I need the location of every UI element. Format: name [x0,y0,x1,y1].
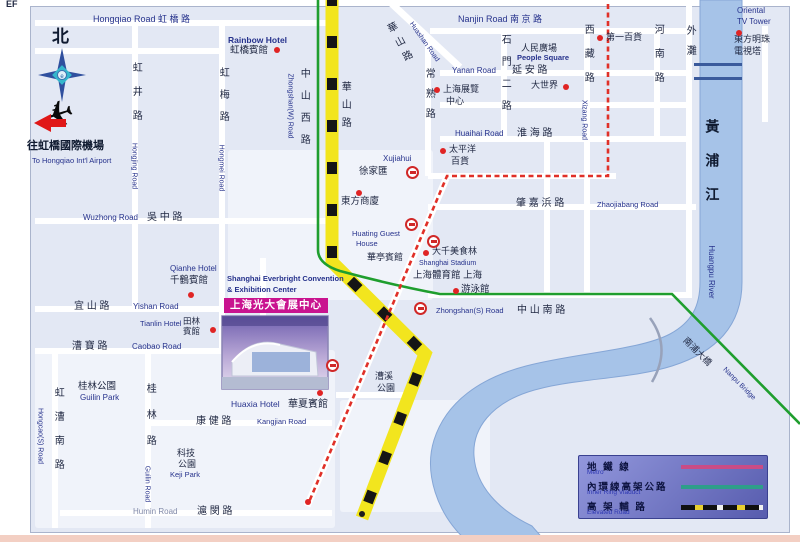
label-road-yanan-en: Yanan Road [452,67,496,75]
label-huating-zh: 華亭賓館 [367,253,403,262]
label-compass-north: 北 [52,28,69,46]
label-road-zhongshans-zh: 中 山 南 路 [517,306,565,317]
metro-station-icon [406,166,419,179]
legend-label-en: Metro [587,469,604,476]
label-river-en: Huangpu River [707,245,715,298]
label-road-guilin-en: Guilin Road [143,466,150,503]
metro-station-icon [405,218,418,231]
label-road-huaihai-en: Huaihai Road [455,130,503,138]
label-huaxia-zh: 華夏賓館 [288,400,328,411]
road-horizontal [35,48,225,54]
label-road-caobao-en: Caobao Road [132,343,181,351]
label-road-nanjing: Nanjin Road 南 京 路 [458,15,542,24]
label-stadium-en: Shanghai Stadium [419,260,476,267]
label-people-square-en: People Square [517,54,569,62]
label-road-hongcao-en: Hongcao(S) Road [36,408,43,464]
legend-row-metro: 地 鐵 線Metro [579,459,767,479]
label-road-kangjian-en: Kangjian Road [257,418,306,426]
label-road-humin-en: Humin Road [133,508,177,516]
label-daqian-zh: 大千美食林 [432,247,477,256]
legend-row-ring: 內環線高架公路Inner Ring Viaduct [579,479,767,499]
landmark-dot-icon [274,47,280,53]
label-road-wuzhong-zh: 吳 中 路 [147,213,183,224]
legend-label-en: Elevated Road [587,509,630,516]
bottom-strip [0,535,800,542]
shanghai-map: e ✈ 上海光大會展中心 Shanghai Everbright Convent… [0,0,800,542]
label-huaxia-en: Huaxia Hotel [231,400,280,409]
legend-row-elevated: 高 架 輔 路Elevated Road [579,499,767,519]
label-exhibition-zh2: 中心 [446,97,464,106]
landmark-dot-icon [188,292,194,298]
label-road-hongqiao: Hongqiao Road 虹 橋 路 [93,15,190,24]
legend-swatch-elevated [681,505,763,510]
label-xujiahui-zh: 徐家匯 [359,167,388,177]
road-horizontal [336,392,408,398]
landmark-dot-icon [563,84,569,90]
label-guilin-park-zh: 桂林公園 [78,382,116,392]
label-huating-en2: House [356,240,378,248]
label-oriental-zh2: 電視塔 [734,47,761,56]
label-road-changshu-zh: 常熟路 [423,68,434,128]
bridge-icon [694,63,742,66]
landmark-dot-icon [597,35,603,41]
label-road-zhongshanw-zh: 中山西路 [298,68,309,156]
label-tianlin-en: Tianlin Hotel [140,320,181,328]
label-road-zhongshanw-en: Zhongshan(W) Road [286,74,293,139]
label-pacific-zh1: 太平洋 [449,145,476,154]
label-road-hongjing-en: Hongjing Road [130,143,137,189]
label-road-kangjian-zh: 康 健 路 [196,417,232,428]
label-oriental-en2: TV Tower [737,18,771,26]
label-stadium-zh: 上海體育館 上海 [413,271,482,281]
map-block [35,350,335,528]
label-road-yishan-en: Yishan Road [133,303,179,311]
landmark-dot-icon [453,288,459,294]
label-road-guilin-zh: 桂林路 [144,383,155,461]
metro-station-icon [427,235,440,248]
label-huating-en1: Huating Guest [352,230,400,238]
airport-arrow-shaft [50,119,66,127]
convention-center-banner: 上海光大會展中心 [224,298,328,313]
label-road-hongmei-zh: 虹梅路 [217,67,228,133]
label-road-shimen-zh: 石門二路 [499,34,510,122]
label-road-caobao-zh: 漕 寶 路 [72,342,108,353]
legend-swatch-ring [681,485,763,489]
label-xujiahui-en: Xujiahui [383,155,411,163]
label-oriental-zh1: 東方明珠 [734,35,770,44]
label-natatorium-zh: 游泳館 [461,285,490,295]
road-horizontal [60,510,332,516]
label-rainbow-hotel-en: Rainbow Hotel [228,36,287,45]
label-qianhe-en: Qianhe Hotel [170,265,217,273]
label-road-yishan-zh: 宜 山 路 [74,302,110,313]
airport-arrow-icon [34,114,51,132]
legend-swatch-metro [681,465,763,469]
label-tianlin-zh2: 賓館 [183,327,200,336]
landmark-dot-icon [434,87,440,93]
label-road-wuzhong-en: Wuzhong Road [83,214,138,222]
label-airport-zh: 往虹橋國際機場 [27,141,104,153]
label-river-zh: 黃浦江 [705,119,720,221]
convention-center-name-line1: Shanghai Everbright Convention [227,274,344,283]
label-road-yanan-zh: 延 安 路 [512,66,548,77]
label-guilin-park-en: Guilin Park [80,394,119,402]
road-vertical [544,140,550,296]
label-caoxi-park-zh1: 漕溪 [375,372,393,381]
label-oriental-en1: Oriental [737,7,765,15]
label-rainbow-hotel-zh: 虹橋賓館 [230,46,268,56]
road-horizontal [35,306,227,312]
convention-center-name-line2: & Exhibition Center [227,285,297,294]
label-keji-park-zh2: 公園 [178,460,196,469]
label-road-zhaojiabang-en: Zhaojiabang Road [597,201,658,209]
label-no1-store-zh: 第一百貨 [606,33,642,42]
label-road-hongcao-zh: 虹漕南路 [52,387,63,483]
label-exhibition-zh: 上海展覽 [443,85,479,94]
landmark-dot-icon [736,30,742,36]
label-keji-park-en: Keji Park [170,471,200,479]
label-road-hongmei-en: Hongmei Road [217,145,224,192]
landmark-dot-icon [305,499,311,505]
label-road-xizang-zh: 西藏路 [582,24,593,96]
label-tianlin-zh1: 田林 [183,317,200,326]
bridge-icon [694,77,742,80]
label-qianhe-zh: 千鶴賓館 [170,276,208,286]
landmark-dot-icon [317,390,323,396]
label-road-henan-zh: 河南路 [652,24,663,96]
landmark-dot-icon [356,190,362,196]
landmark-dot-icon [210,327,216,333]
label-corner-ef: EF [6,0,18,9]
metro-station-icon [414,302,427,315]
road-end-dot-icon [359,511,365,517]
label-bund-zh: 外灘 [684,25,695,65]
label-keji-park-zh1: 科技 [177,449,195,458]
metro-station-icon [326,359,339,372]
label-great-world-zh: 大世界 [531,81,558,90]
label-road-xizang-en: Xizang Road [580,100,587,140]
map-legend: 地 鐵 線Metro內環線高架公路Inner Ring Viaduct高 架 輔… [578,455,768,519]
legend-label-en: Inner Ring Viaduct [587,489,640,496]
label-road-huaihai-zh: 淮 海 路 [517,129,553,140]
label-pacific-zh2: 百貨 [451,157,469,166]
label-caoxi-park-zh2: 公園 [377,384,395,393]
legend-rows: 地 鐵 線Metro內環線高架公路Inner Ring Viaduct高 架 輔… [579,459,767,519]
label-oriental-mall-zh: 東方商廈 [341,197,379,207]
label-road-zhaojiabang-zh: 肇 嘉 浜 路 [516,199,564,210]
label-road-huashan-zh: 華山路 [339,81,350,135]
label-road-hongjing-zh: 虹井路 [130,62,141,134]
landmark-dot-icon [440,148,446,154]
label-road-humin-zh: 滬 閔 路 [197,507,233,518]
road-horizontal [35,348,227,354]
label-road-zhongshans-en: Zhongshan(S) Road [436,307,504,315]
landmark-dot-icon [423,250,429,256]
map-block [340,400,490,512]
label-airport-en: To Hongqiao Int'l Airport [32,157,111,165]
